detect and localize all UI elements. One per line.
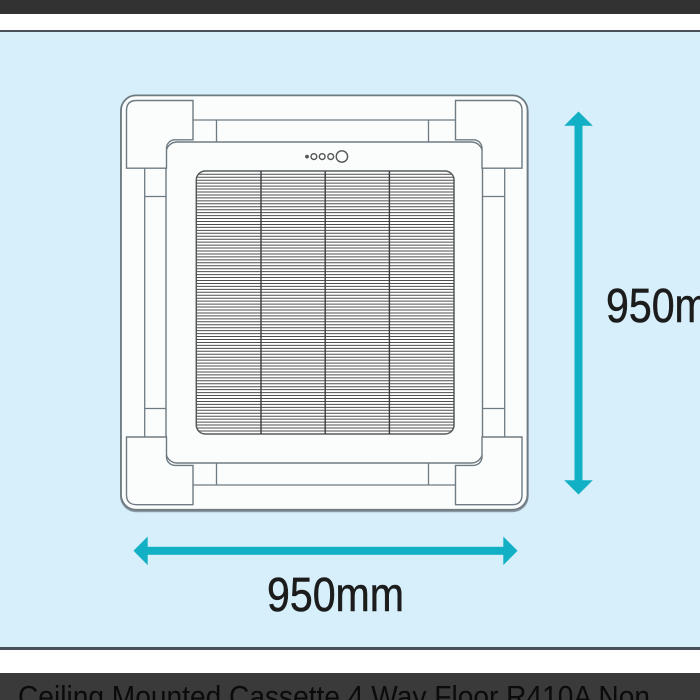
svg-text:950mm: 950mm [606,280,700,333]
svg-text:950mm: 950mm [267,569,404,622]
